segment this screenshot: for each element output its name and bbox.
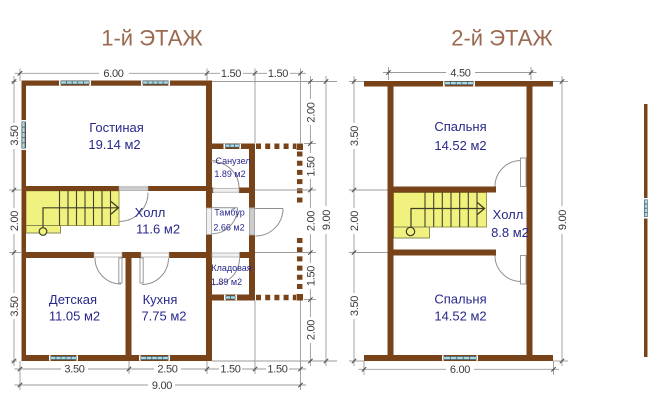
svg-text:1.89 м2: 1.89 м2 <box>214 169 245 179</box>
svg-text:3.50: 3.50 <box>64 364 84 376</box>
svg-text:19.14 м2: 19.14 м2 <box>88 137 140 152</box>
svg-text:Детская: Детская <box>49 292 97 307</box>
svg-text:2-й ЭТАЖ: 2-й ЭТАЖ <box>451 26 553 51</box>
svg-text:11.6 м2: 11.6 м2 <box>136 222 180 237</box>
svg-text:2.00: 2.00 <box>305 320 317 340</box>
svg-text:4.50: 4.50 <box>450 67 470 79</box>
svg-text:2.66 м2: 2.66 м2 <box>213 223 244 233</box>
svg-text:7.75 м2: 7.75 м2 <box>141 309 186 324</box>
svg-text:Холл: Холл <box>135 205 166 220</box>
svg-text:1.50: 1.50 <box>221 68 241 80</box>
svg-text:9.00: 9.00 <box>152 380 172 392</box>
svg-text:2.50: 2.50 <box>157 364 177 376</box>
svg-text:6.00: 6.00 <box>103 68 123 80</box>
svg-text:14.52 м2: 14.52 м2 <box>434 138 486 153</box>
svg-text:Холл: Холл <box>493 207 524 222</box>
svg-text:Санузел: Санузел <box>215 156 250 166</box>
svg-text:1.89 м2: 1.89 м2 <box>211 277 242 287</box>
svg-text:3.50: 3.50 <box>349 126 361 146</box>
svg-text:3.50: 3.50 <box>9 125 21 145</box>
svg-text:1.50: 1.50 <box>305 266 317 286</box>
svg-text:1-й ЭТАЖ: 1-й ЭТАЖ <box>101 26 203 51</box>
svg-text:9.00: 9.00 <box>321 210 333 230</box>
svg-text:1.50: 1.50 <box>268 68 288 80</box>
svg-text:Спальня: Спальня <box>434 292 486 307</box>
svg-text:8.8 м2: 8.8 м2 <box>491 225 529 240</box>
svg-text:6.00: 6.00 <box>450 364 470 376</box>
svg-text:2.00: 2.00 <box>9 211 21 231</box>
svg-text:9.00: 9.00 <box>557 210 569 230</box>
svg-text:1.50: 1.50 <box>305 156 317 176</box>
svg-text:2.00: 2.00 <box>305 102 317 122</box>
svg-text:14.52 м2: 14.52 м2 <box>434 309 486 324</box>
svg-text:2.00: 2.00 <box>305 211 317 231</box>
svg-text:3.50: 3.50 <box>9 296 21 316</box>
svg-text:Спальня: Спальня <box>434 119 486 134</box>
svg-text:1.50: 1.50 <box>220 364 240 376</box>
svg-text:2.00: 2.00 <box>349 211 361 231</box>
svg-text:11.05 м2: 11.05 м2 <box>49 309 100 324</box>
svg-text:3.50: 3.50 <box>349 296 361 316</box>
svg-text:Кладовая: Кладовая <box>211 263 251 273</box>
svg-text:Тамбур: Тамбур <box>214 208 245 218</box>
svg-text:Гостиная: Гостиная <box>89 120 144 135</box>
svg-text:1.50: 1.50 <box>267 364 287 376</box>
svg-text:Кухня: Кухня <box>143 292 178 307</box>
